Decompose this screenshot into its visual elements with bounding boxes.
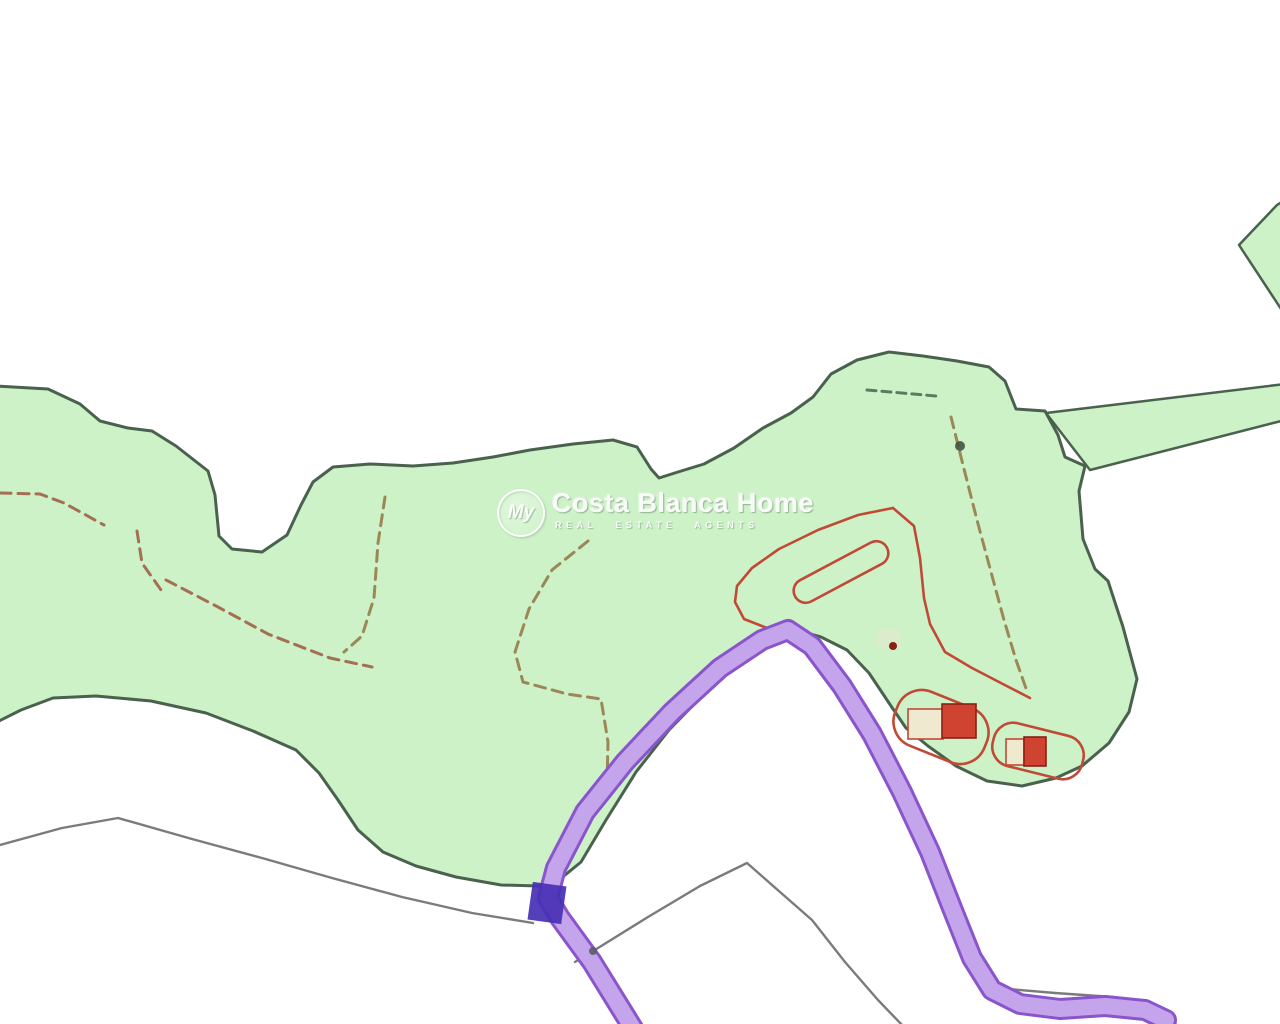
cadastral-map: My Costa Blanca Home REAL ESTATE AGENTS bbox=[0, 0, 1280, 1024]
building-1-pale bbox=[908, 709, 943, 739]
building-1-red bbox=[942, 704, 976, 738]
green-corner-wedge bbox=[1239, 200, 1280, 315]
green-parcel-main bbox=[0, 352, 1137, 886]
terrain-dot-dark bbox=[955, 441, 965, 451]
cadastral-map-svg bbox=[0, 0, 1280, 1024]
terrain-dot-red bbox=[889, 642, 897, 650]
building-2-red bbox=[1024, 737, 1046, 766]
line-crossing-dot bbox=[589, 947, 597, 955]
building-2-pale bbox=[1006, 739, 1024, 765]
road-junction-marker bbox=[528, 882, 567, 924]
pale-terrain-patch bbox=[877, 629, 901, 647]
green-corridor-strip bbox=[1046, 384, 1280, 470]
